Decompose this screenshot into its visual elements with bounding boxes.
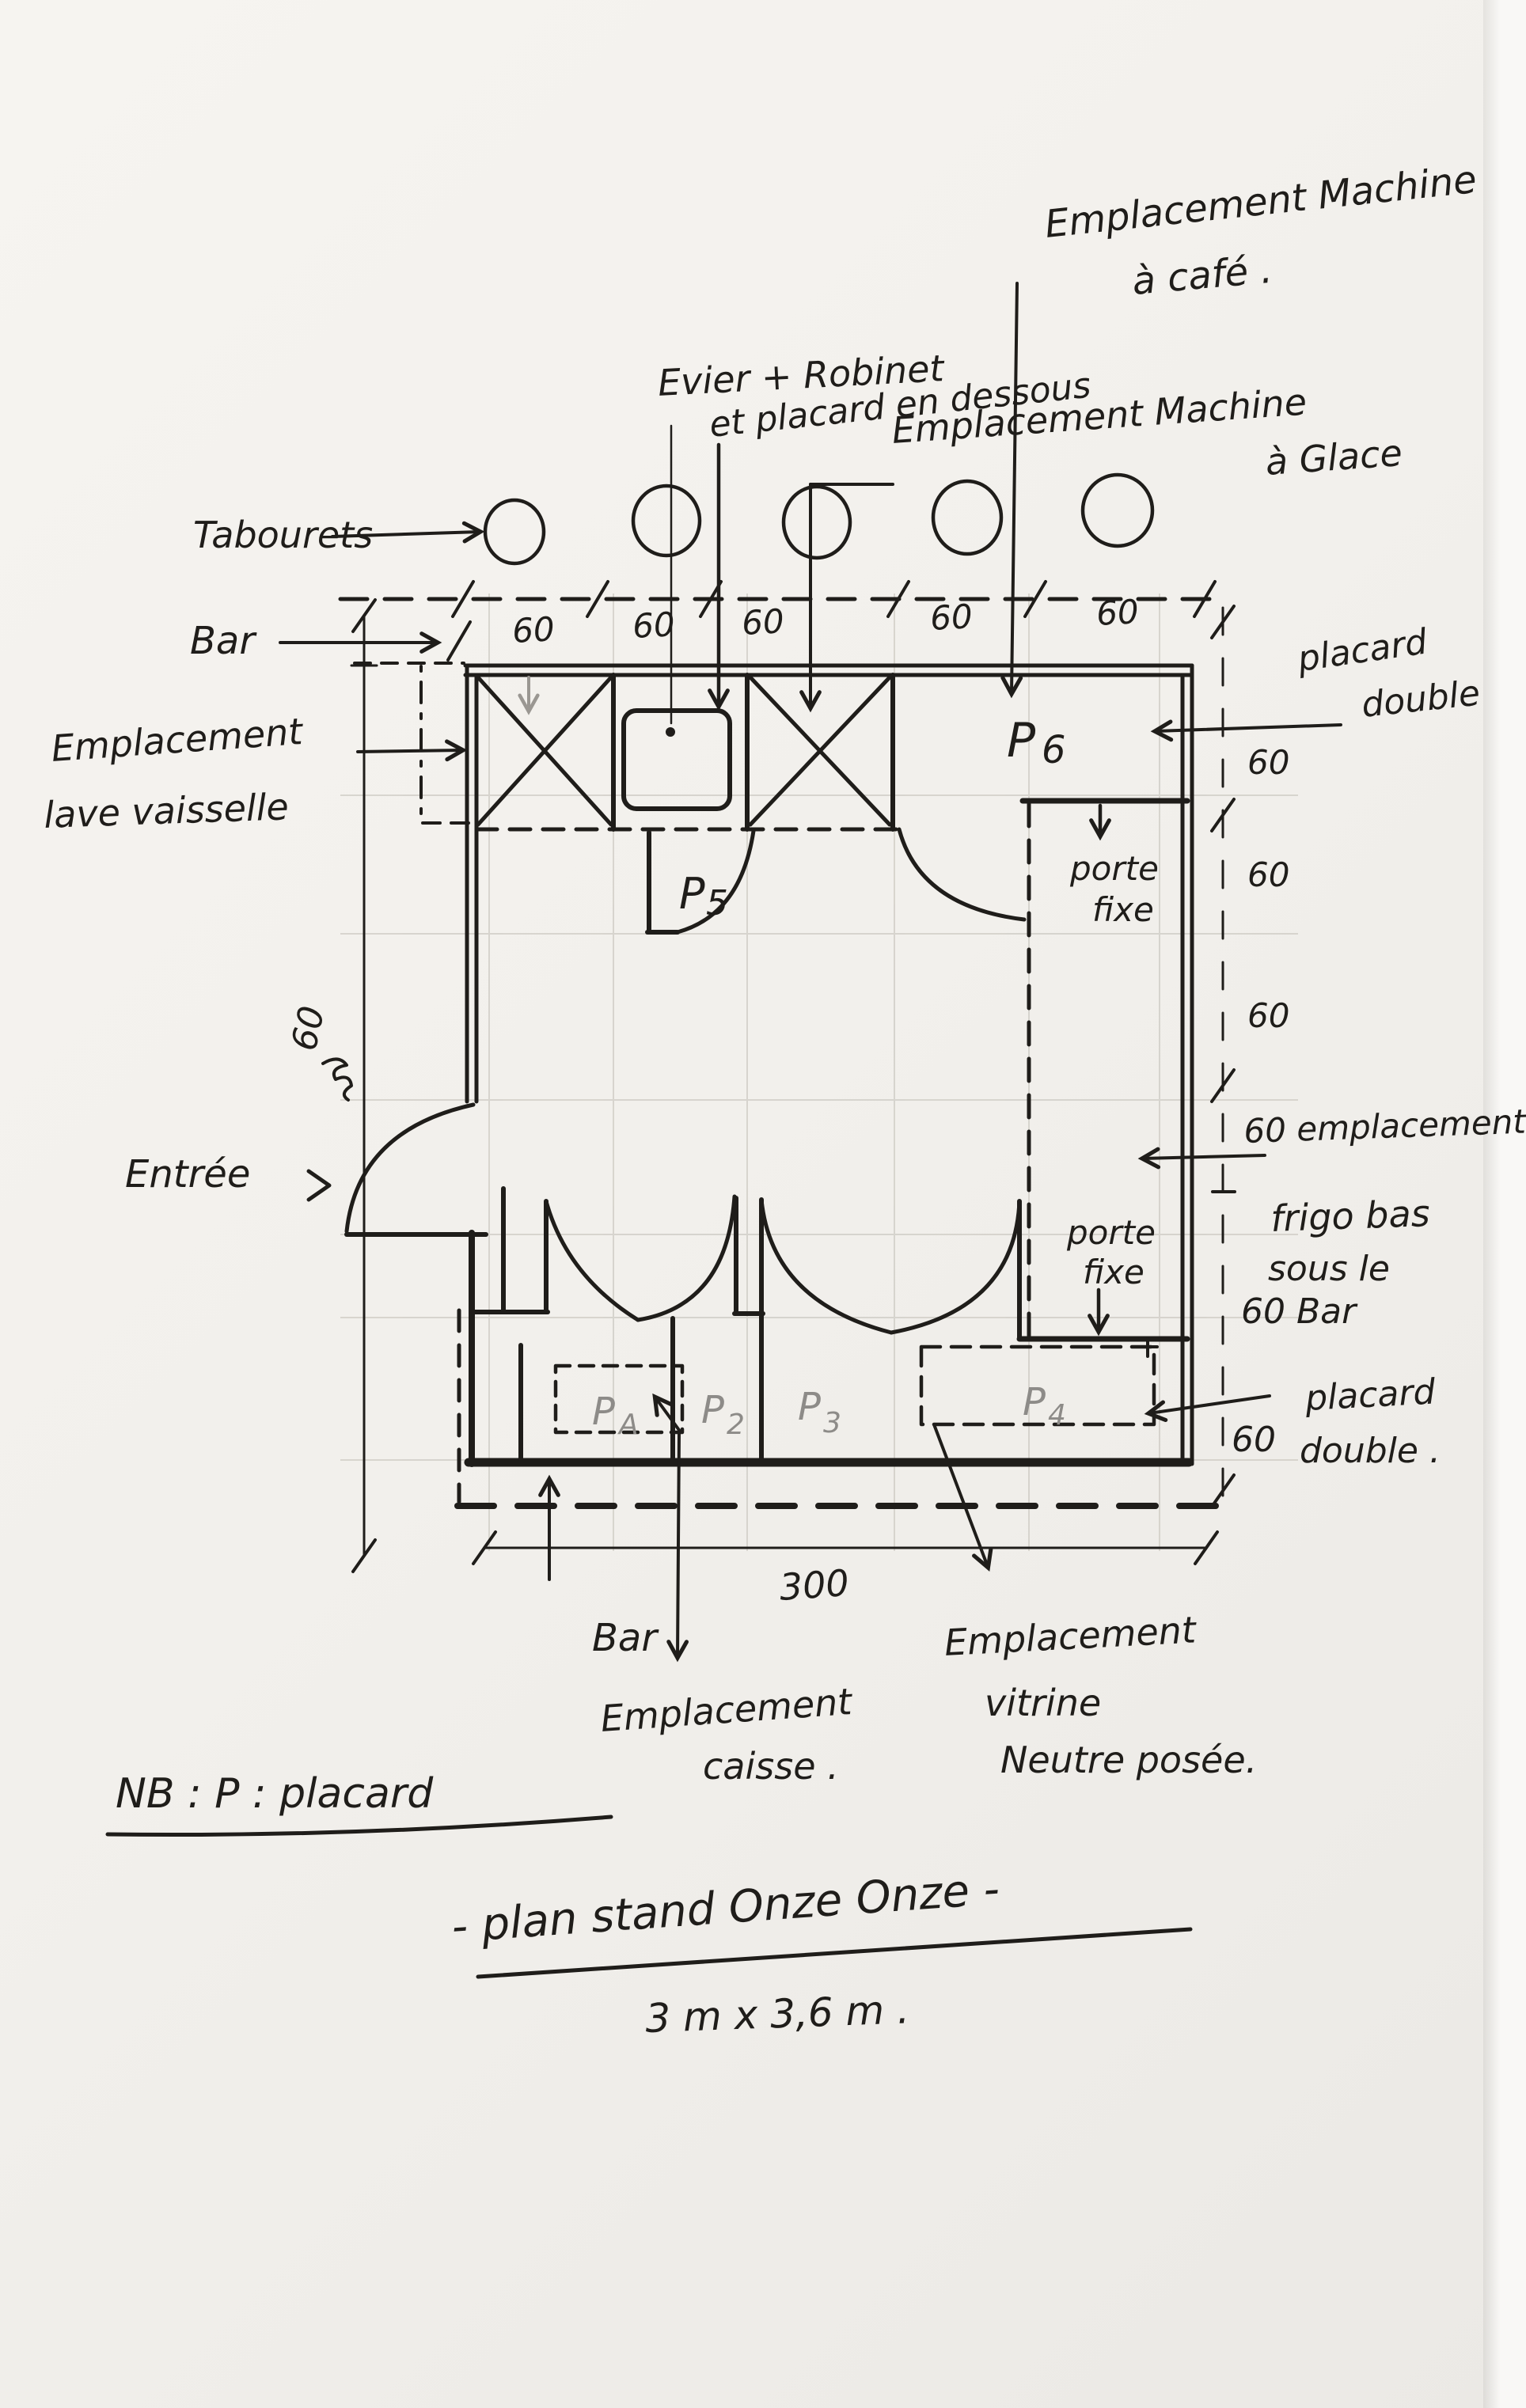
label-p2-main: P [701,1388,724,1432]
p6-door-swing-arc [899,829,1024,920]
label-p3-main: P [798,1385,821,1429]
label-tabourets: Tabourets [193,514,373,556]
label-p3-sub: 3 [823,1407,841,1439]
label-porte-fixe-bottom-2: fixe [1083,1253,1144,1291]
label-caisse-1: Emplacement [599,1680,855,1740]
label-frigo-2: frigo bas [1270,1192,1430,1240]
dim-top-60-5: 60 [1095,592,1140,633]
leader-frigo [1143,1155,1265,1158]
label-vitrine-1: Emplacement [943,1608,1198,1664]
page-title: - plan stand Onze Onze - [450,1864,1001,1953]
leader-lave-vaisselle [358,750,462,752]
entrance-door-swing-arc [347,1105,473,1231]
label-placard-double-bottom-1: placard [1304,1371,1437,1419]
scanned-sketch-page: { "colors": { "ink": "#1f1d1a", "pencil"… [0,0,1526,2408]
tick-bar-top [448,622,470,660]
label-bar-bottom: Bar [592,1616,659,1660]
stool-5 [1083,475,1152,546]
dim-bottom-300: 300 [778,1561,850,1609]
dim-right-60-3: 60 [1247,996,1289,1035]
label-pa-sub: A [617,1409,639,1441]
label-machine-glace-2: à Glace [1264,431,1403,483]
label-porte-fixe-top-1: porte [1069,849,1159,888]
stool-1 [485,500,544,563]
label-porte-fixe-bottom-1: porte [1066,1213,1156,1252]
note-nb: NB : P : placard [116,1770,434,1818]
label-p4-main: P [1023,1380,1046,1424]
stool-3 [784,487,850,558]
dim-right-60-2: 60 [1247,855,1289,894]
floor-plan-sketch: Emplacement Machine à café . Evier + Rob… [0,0,1526,2408]
stool-2 [633,486,700,556]
leader-caisse-vertical [678,1432,679,1657]
entree-chevron [309,1171,329,1200]
label-machine-cafe-2: à café . [1130,248,1274,304]
label-lave-vaisselle-1: Emplacement [50,710,306,770]
label-machine-cafe-1: Emplacement Machine [1042,157,1479,247]
label-caisse-2: caisse . [703,1745,839,1788]
leader-vitrine [934,1424,988,1567]
dim-top-60-3: 60 [741,601,785,643]
dim-left-scribble [323,1059,351,1100]
dim-top-60-1: 60 [511,609,556,650]
door1-leaf-right [638,1196,735,1320]
label-p6-sub: 6 [1042,728,1066,772]
label-vitrine-2: vitrine [985,1682,1101,1724]
label-entree: Entrée [125,1152,250,1196]
dim-top-60-4: 60 [929,597,974,638]
dim-top-60-2: 60 [632,605,676,646]
label-frigo-1: 60 emplacement [1243,1102,1526,1151]
leader-placard-double-bottom [1149,1396,1270,1413]
label-vitrine-3: Neutre posée. [1000,1739,1257,1781]
label-p5-sub: 5 [706,883,728,923]
leader-caisse-diagonal [655,1397,681,1432]
dim-right-60-bottom: 60 [1232,1420,1276,1460]
label-bar-top: Bar [190,619,257,663]
label-frigo-4: 60 Bar [1241,1291,1358,1332]
label-p2-sub: 2 [727,1409,745,1441]
sink-leader-dot [666,727,675,737]
dim-left-60: 60 [284,1003,333,1054]
label-pa-main: P [592,1390,615,1434]
label-placard-double-bottom-2: double . [1300,1431,1441,1471]
page-title-dimensions: 3 m x 3,6 m . [644,1986,910,2042]
label-p6-main: P [1007,713,1036,768]
label-p4-sub: 4 [1048,1399,1066,1432]
door2-leaf-left [761,1200,891,1333]
dim-right-60-1: 60 [1247,743,1289,782]
door2-leaf-right [891,1201,1019,1333]
note-nb-underline [108,1817,611,1835]
stool-4 [933,481,1001,554]
door1-leaf-left [546,1201,638,1320]
sink [624,711,730,809]
label-frigo-3: sous le [1268,1249,1390,1289]
label-porte-fixe-top-2: fixe [1092,890,1154,929]
label-placard-double-top-1: placard [1294,621,1430,680]
label-lave-vaisselle-2: lave vaisselle [43,785,289,836]
leader-machine-cafe [1012,283,1017,693]
label-p5-main: P [679,869,705,919]
label-placard-double-top-2: double [1360,673,1482,726]
